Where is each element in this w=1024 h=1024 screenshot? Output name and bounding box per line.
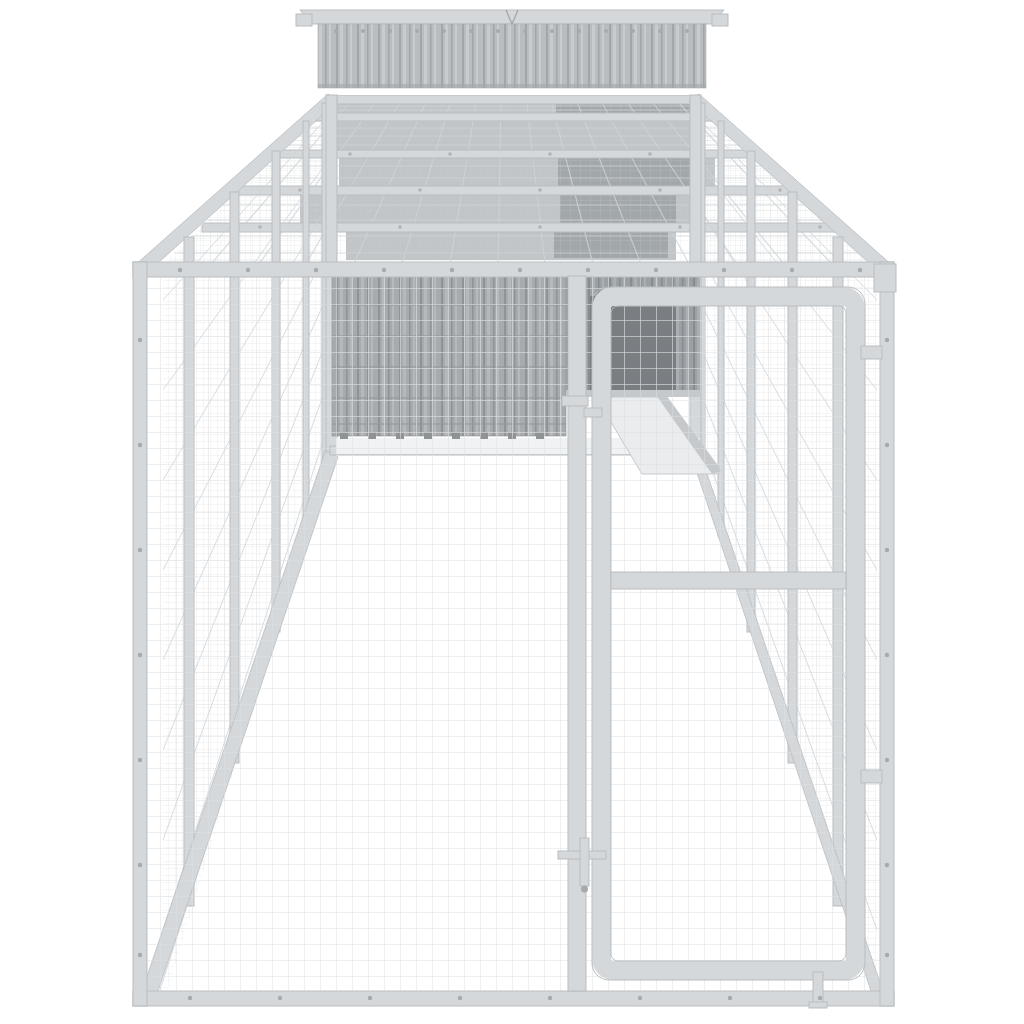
- corner-bracket-top-right: [874, 264, 896, 292]
- coop-roof-bracket-right: [712, 14, 728, 26]
- front-post-right: [880, 262, 894, 1006]
- front-post-left: [133, 262, 147, 1006]
- door-hinge-right-top: [861, 346, 882, 359]
- coop-corrugated-wall: [318, 24, 706, 88]
- kennel-photo-svg: [0, 0, 1024, 1024]
- door-hinge-right-bottom: [861, 770, 882, 783]
- door-hinge-upper-plate: [584, 408, 602, 417]
- kennel-photo: [0, 0, 1024, 1024]
- front-mesh-panel: [147, 277, 880, 991]
- coop-house: [296, 10, 728, 88]
- coop-wall-bottom-edge: [318, 84, 706, 88]
- roof-back-plate: [328, 95, 701, 104]
- coop-roof-cap: [300, 10, 724, 24]
- coop-roof-bracket-left: [296, 14, 312, 26]
- front-bottom-rail: [133, 991, 894, 1006]
- door-hinge-upper: [562, 396, 588, 406]
- door-mid-rail: [611, 572, 846, 589]
